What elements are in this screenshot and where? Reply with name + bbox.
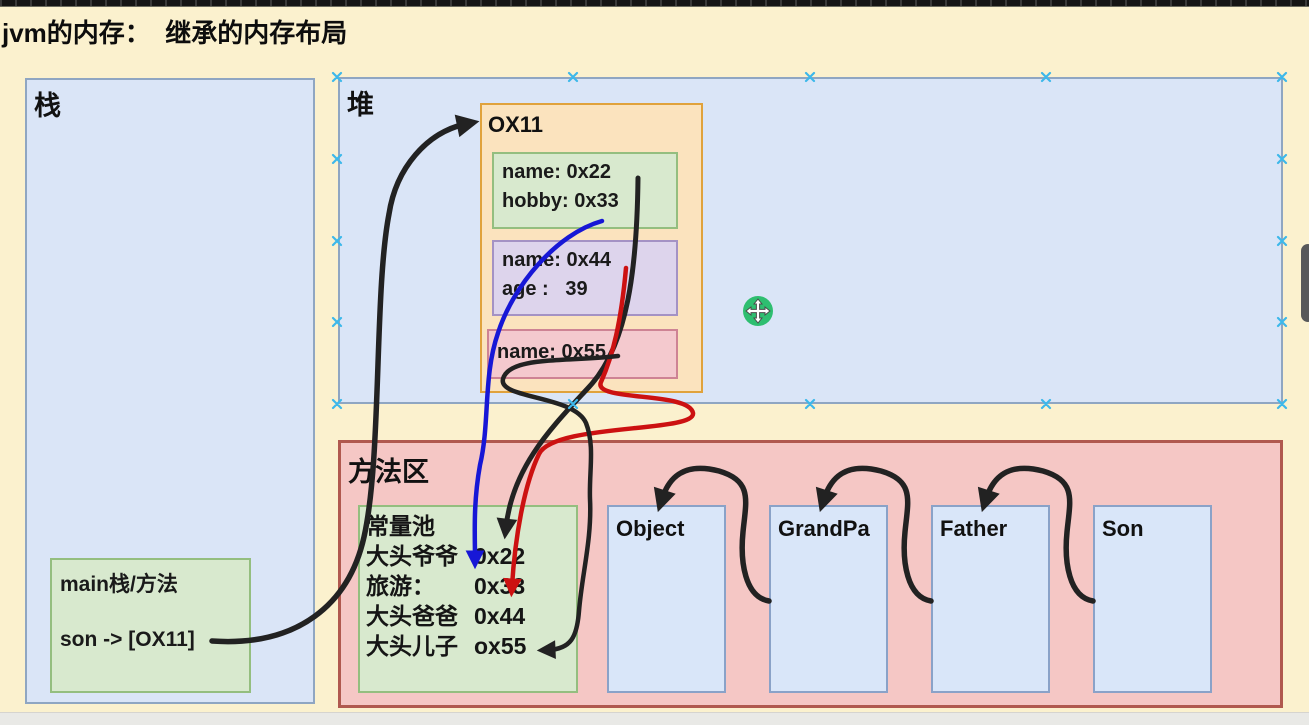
constant-pool-title: 常量池 — [366, 511, 526, 541]
constant-pool-entry: 大头儿子ox55 — [366, 631, 526, 661]
father-record-box[interactable]: name: 0x44age : 39 — [492, 240, 678, 316]
father-record-text: name: 0x44age : 39 — [502, 246, 611, 304]
main-stack-frame-box[interactable]: main栈/方法 son -> [OX11] — [50, 558, 251, 693]
class-label-grandpa: GrandPa — [778, 516, 870, 542]
class-label-father: Father — [940, 516, 1007, 542]
grandpa-record-text: name: 0x22hobby: 0x33 — [502, 158, 619, 216]
son-reference-text: son -> [OX11] — [60, 628, 195, 652]
scrollbar-thumb[interactable] — [1301, 244, 1309, 322]
stack-region-box[interactable]: 栈 main栈/方法 son -> [OX11] — [25, 78, 315, 704]
top-ruler — [0, 0, 1309, 7]
move-cursor-icon — [740, 293, 776, 329]
class-box-son[interactable]: Son — [1093, 505, 1212, 693]
son-record-box[interactable]: name: 0x55 — [487, 329, 678, 379]
class-box-object[interactable]: Object — [607, 505, 726, 693]
class-label-object: Object — [616, 516, 684, 542]
stack-region-label: 栈 — [34, 84, 61, 123]
constant-pool-entry: 大头爷爷0x22 — [366, 541, 526, 571]
grandpa-record-box[interactable]: name: 0x22hobby: 0x33 — [492, 152, 678, 229]
bottom-window-edge — [0, 712, 1309, 725]
main-frame-title: main栈/方法 — [60, 568, 178, 598]
class-box-grandpa[interactable]: GrandPa — [769, 505, 888, 693]
page-title: jvm的内存： 继承的内存布局 — [2, 13, 347, 50]
heap-object-title: OX11 — [488, 112, 543, 138]
class-box-father[interactable]: Father — [931, 505, 1050, 693]
class-label-son: Son — [1102, 516, 1144, 542]
constant-pool-box[interactable]: 常量池 大头爷爷0x22 旅游：0x33 大头爸爸0x44 大头儿子ox55 — [358, 505, 578, 693]
method-area-label: 方法区 — [348, 450, 429, 489]
constant-pool-entry: 旅游：0x33 — [366, 571, 526, 601]
heap-region-label: 堆 — [347, 83, 374, 122]
constant-pool-content: 常量池 大头爷爷0x22 旅游：0x33 大头爸爸0x44 大头儿子ox55 — [366, 511, 526, 661]
constant-pool-entry: 大头爸爸0x44 — [366, 601, 526, 631]
drawing-canvas[interactable]: jvm的内存： 继承的内存布局 栈 main栈/方法 son -> [OX11]… — [0, 0, 1309, 725]
